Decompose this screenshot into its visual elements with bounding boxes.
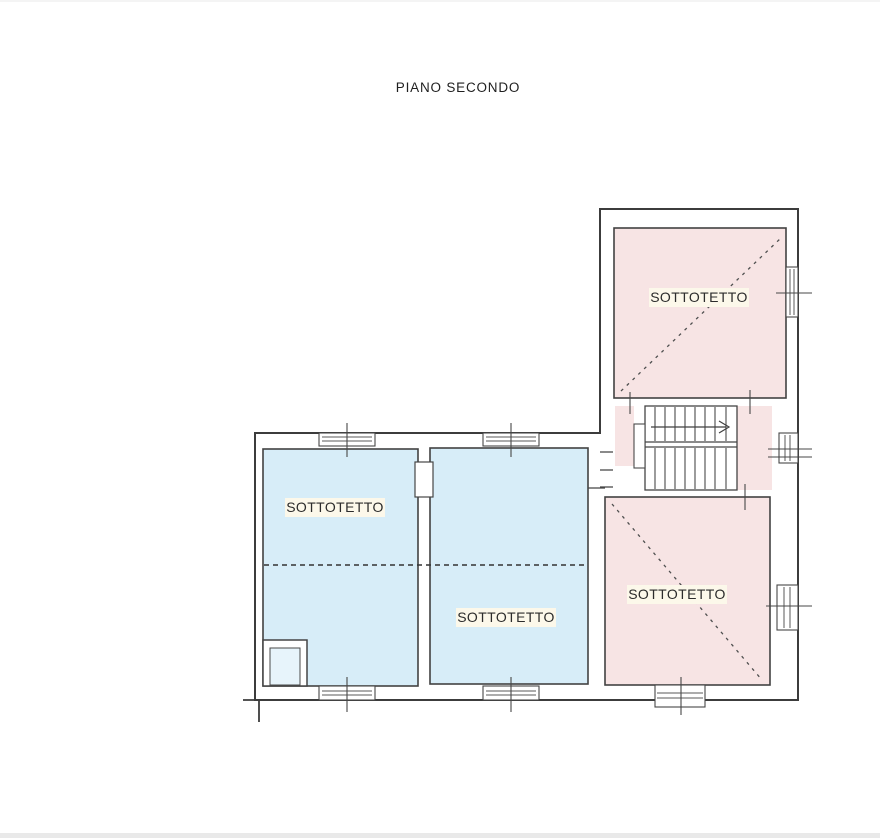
room-label-attic-center: SOTTOTETTO: [456, 608, 556, 627]
room-label-text: SOTTOTETTO: [628, 586, 726, 602]
window-box: [786, 267, 798, 317]
page-title: PIANO SECONDO: [396, 80, 520, 95]
stair-flight-box: [645, 406, 737, 490]
duct-void: [263, 640, 307, 686]
room-label-attic-south-east: SOTTOTETTO: [627, 585, 727, 604]
duct-inner-box: [270, 648, 300, 685]
room-floor-area: [430, 448, 588, 684]
stair-landing-left: [615, 406, 634, 466]
room-attic-north-east: [614, 228, 786, 398]
stair-rail: [634, 424, 645, 468]
room-label-text: SOTTOTETTO: [286, 499, 384, 515]
room-label-attic-west: SOTTOTETTO: [285, 498, 385, 517]
window-box: [655, 685, 705, 707]
room-label-attic-north-east: SOTTOTETTO: [649, 288, 749, 307]
room-attic-center: [430, 448, 588, 684]
stair-landing-right: [737, 406, 772, 490]
window-box: [777, 585, 798, 630]
wall-stub-bottom-left: [243, 700, 259, 722]
window-box: [779, 433, 798, 463]
room-label-text: SOTTOTETTO: [650, 289, 748, 305]
floor-plan: PIANO SECONDO: [0, 0, 880, 838]
room-label-text: SOTTOTETTO: [457, 609, 555, 625]
wall-niche: [415, 462, 433, 497]
floor-plan-page: PIANO SECONDO: [0, 0, 880, 838]
scan-edge-bottom: [0, 833, 880, 838]
scan-edge-top: [0, 0, 880, 2]
